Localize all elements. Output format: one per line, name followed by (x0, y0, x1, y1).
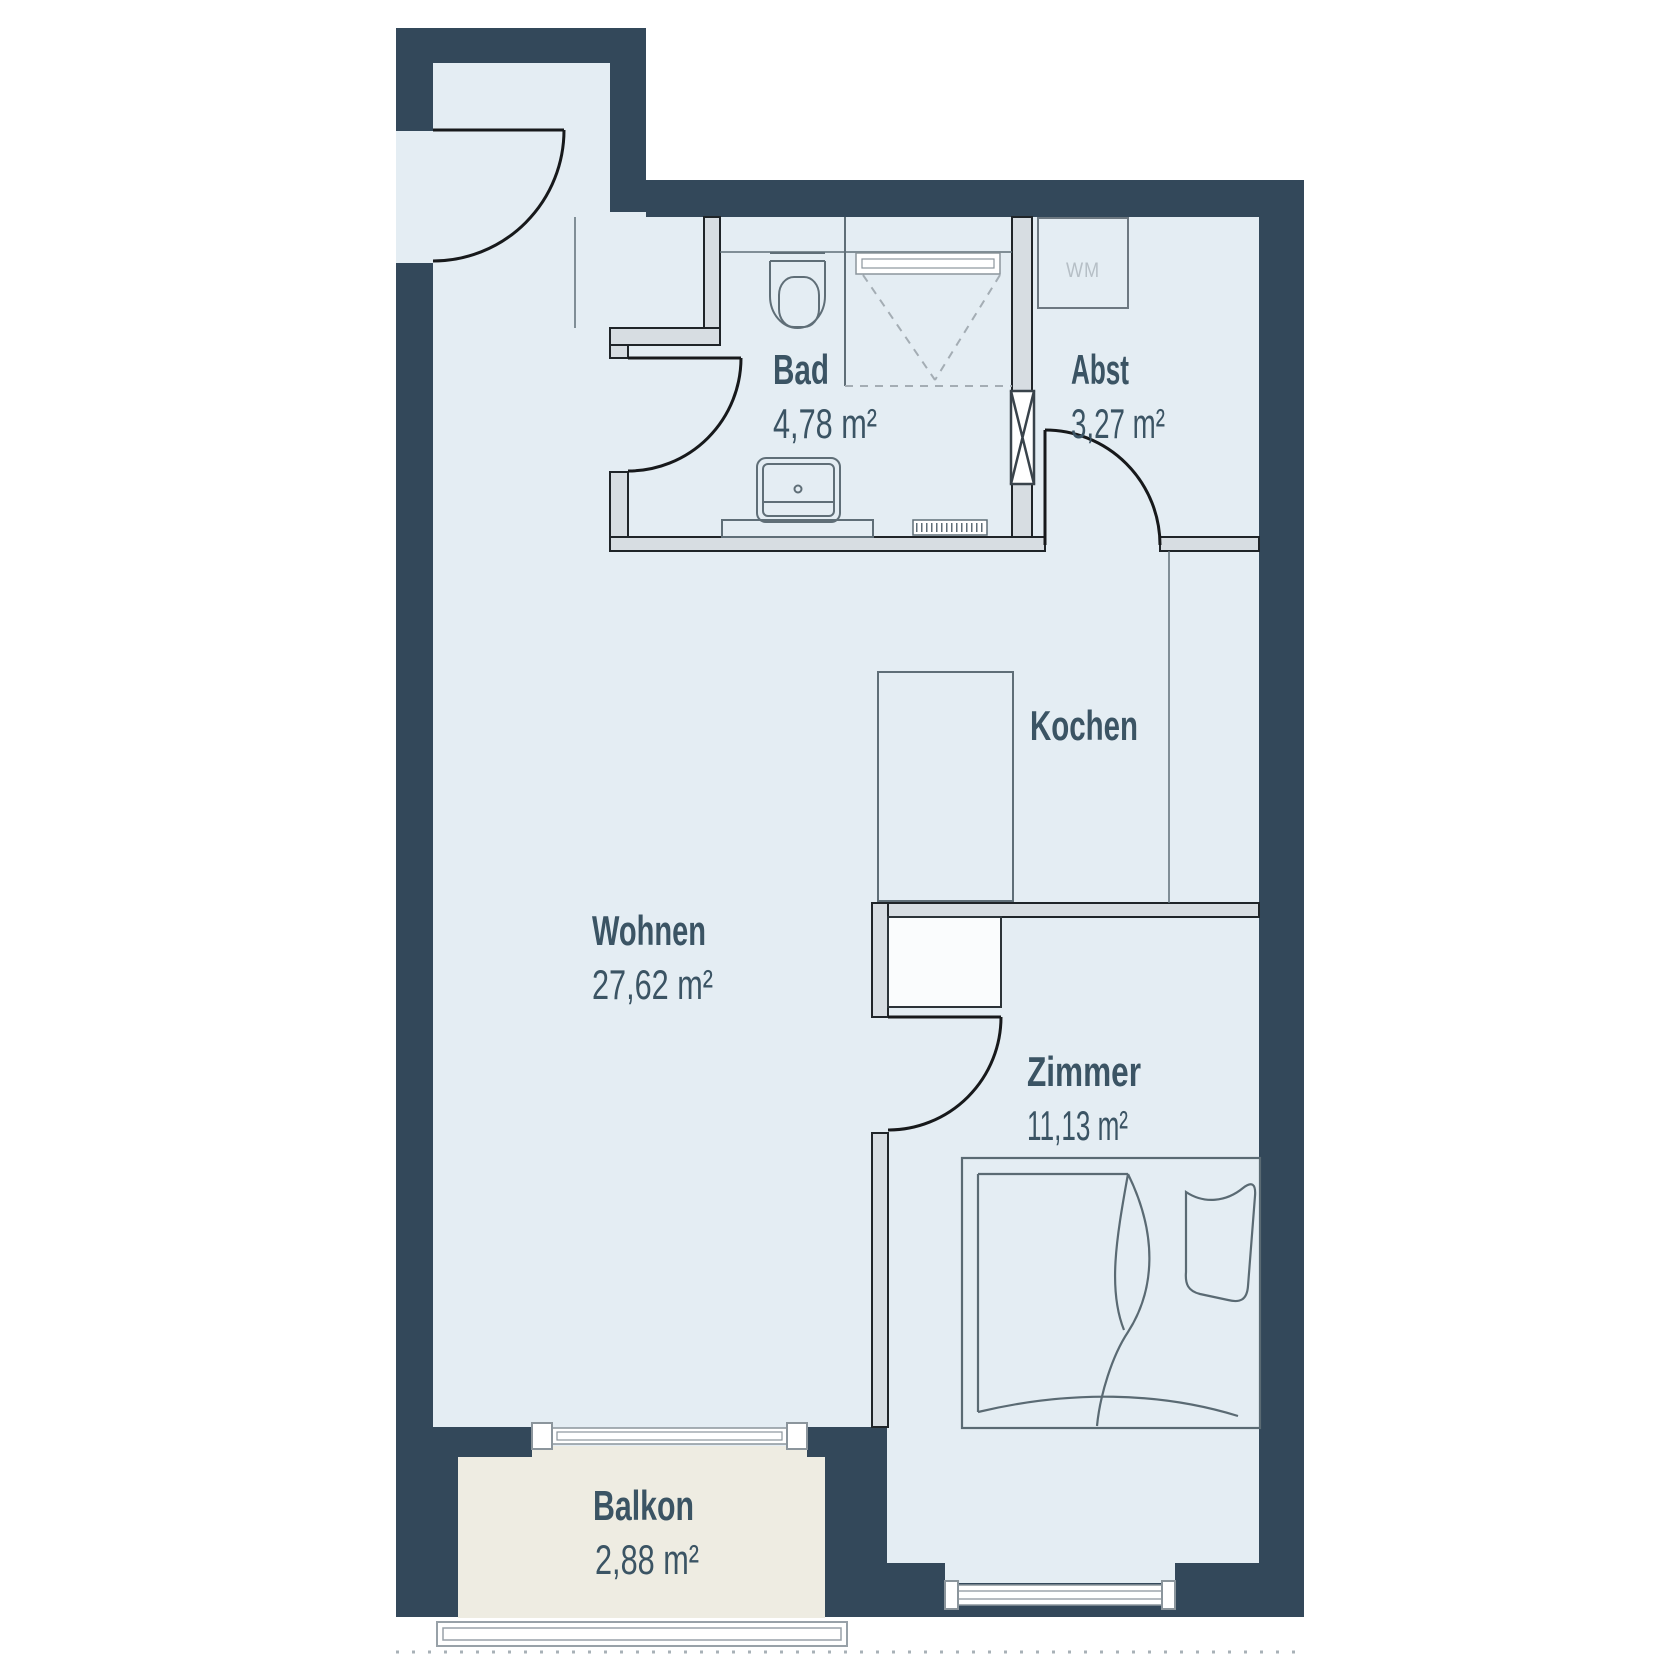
wall-shaft (1012, 217, 1032, 537)
wall-bad-bottom (610, 537, 1045, 551)
wall-zimmer-left-upper (872, 903, 888, 1017)
floor-plan-page: WM (0, 0, 1659, 1659)
room-label-bad: Bad (773, 346, 829, 393)
wall-abst-bottom (1160, 537, 1259, 551)
room-label-balkon: Balkon (593, 1482, 694, 1529)
room-area-bad: 4,78 m² (773, 400, 877, 447)
washing-machine-label: WM (1066, 259, 1100, 282)
room-label-wohnen: Wohnen (592, 907, 706, 954)
wardrobe (888, 917, 1001, 1007)
wall-top (646, 180, 1304, 217)
room-label-kochen: Kochen (1030, 702, 1138, 749)
wall-bad-left-stub (610, 345, 628, 358)
balcony-floor (458, 1446, 825, 1618)
kitchen-counter (878, 672, 1013, 901)
room-area-zimmer: 11,13 m² (1027, 1102, 1128, 1149)
apartment-floor (396, 28, 1304, 1617)
wall-right (1259, 217, 1304, 1617)
floor-plan: WM (0, 0, 1659, 1659)
towel-radiator-symbol (913, 520, 987, 535)
zimmer-window-notch (945, 1563, 1175, 1583)
room-label-zimmer: Zimmer (1027, 1048, 1141, 1095)
shaft-symbol (1011, 391, 1034, 484)
wall-zimmer-left-lower (872, 1133, 888, 1427)
balcony-railing (437, 1622, 847, 1646)
room-label-abst: Abst (1071, 346, 1129, 393)
room-area-abst: 3,27 m² (1071, 400, 1165, 447)
wall-niche-bottom (610, 328, 720, 345)
wall-left (396, 263, 433, 1427)
room-area-balkon: 2,88 m² (595, 1536, 699, 1583)
zimmer-window (945, 1581, 1175, 1609)
wall-niche-right (704, 217, 720, 345)
room-area-wohnen: 27,62 m² (592, 961, 713, 1008)
wall-wohnen-zimmer (872, 903, 1259, 917)
